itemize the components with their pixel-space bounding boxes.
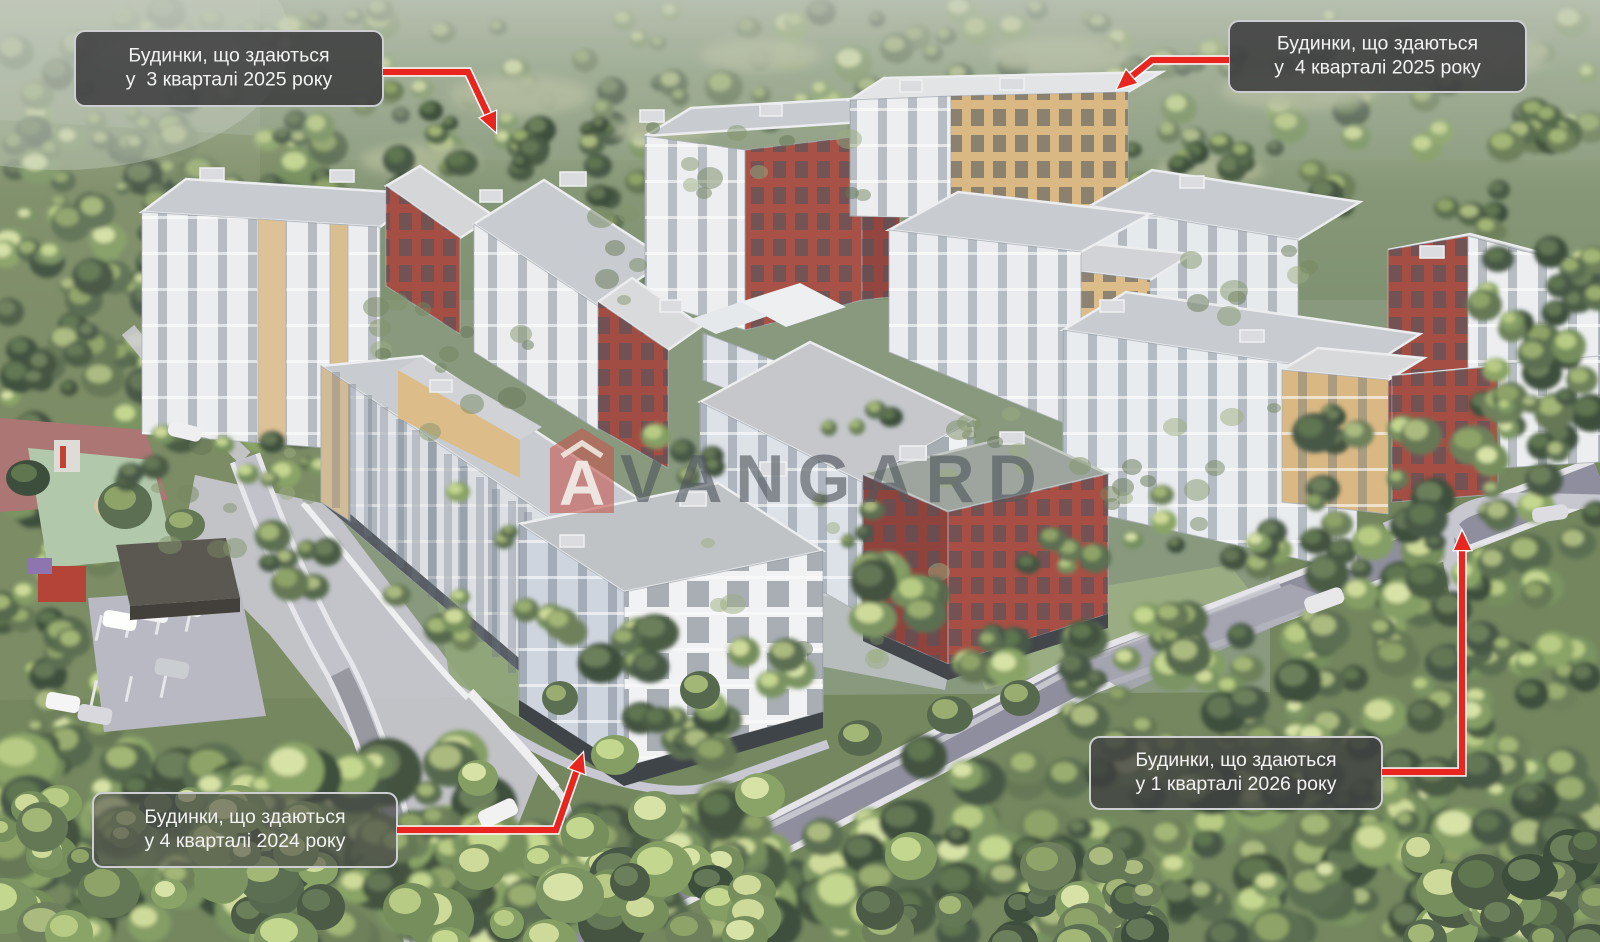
svg-text:VANGARD: VANGARD [620, 441, 1050, 517]
svg-text:Будинки, що здаються: Будинки, що здаються [144, 806, 345, 828]
svg-text:у 4 кварталі 2025 року: у 4 кварталі 2025 року [1274, 57, 1481, 79]
svg-text:Будинки, що здаються: Будинки, що здаються [1135, 749, 1336, 771]
svg-text:у 1 кварталі 2026 року: у 1 кварталі 2026 року [1135, 773, 1336, 795]
svg-text:у 4 кварталі 2024 року: у 4 кварталі 2024 року [144, 830, 345, 852]
svg-text:у 3 кварталі 2025 року: у 3 кварталі 2025 року [126, 69, 333, 91]
svg-text:A: A [559, 447, 605, 519]
svg-text:Будинки, що здаються: Будинки, що здаються [128, 45, 329, 67]
svg-text:Будинки, що здаються: Будинки, що здаються [1277, 33, 1478, 55]
